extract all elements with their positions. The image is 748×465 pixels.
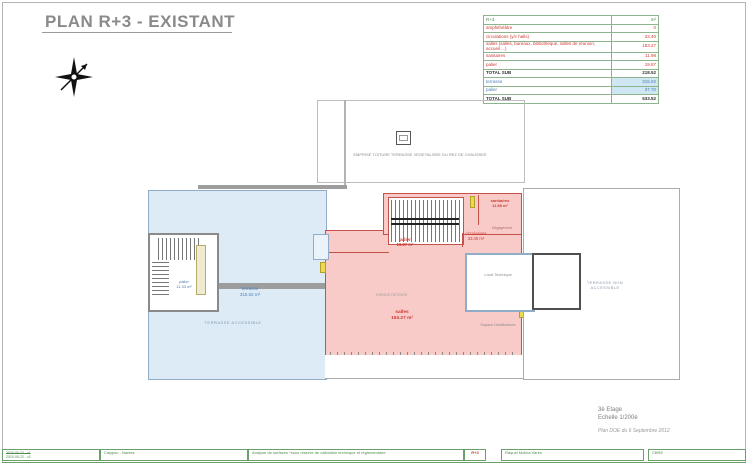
roof-caption: EMPRISE TOITURE TERRASSE VEGETALISEE DU …	[317, 152, 523, 157]
table-row: palier 37.70	[484, 86, 659, 95]
title-underline	[42, 32, 232, 33]
room-area: 11.33 m²	[176, 284, 192, 289]
row-value: 11.98	[612, 52, 659, 61]
footer-version-cell: 2020-05-22 - v1 2020-05-22 - v2	[2, 449, 100, 461]
stair-rail	[391, 223, 459, 225]
table-row: circulations (y/c halls) 33.40	[484, 33, 659, 42]
row-value: 533.52	[612, 95, 659, 104]
table-row: salles (salles, bureaux, bibliothèque, s…	[484, 41, 659, 52]
row-value: 0	[612, 24, 659, 33]
table-row: sanitaires 11.98	[484, 52, 659, 61]
row-label: palier	[484, 61, 612, 70]
espace-detente-label: ESPACE DETENTE	[370, 293, 414, 297]
terrasse-non-accessible-label: TERRASSE NON ACCESSIBLE	[575, 280, 635, 290]
surface-area-table: R+3 m² amphithéâtre 0 circulations (y/c …	[483, 15, 659, 104]
roof-outline	[317, 100, 525, 183]
room-area: 11.98 m²	[492, 203, 508, 208]
floor-label: 3è Etage	[598, 407, 670, 415]
roof-hatch-icon	[396, 131, 411, 145]
room-name: circulations	[466, 231, 487, 236]
row-label: TOTAL SUB	[484, 69, 612, 78]
interior-wall	[478, 195, 479, 225]
table-row: palier 19.87	[484, 61, 659, 70]
footer-level-cell: R+3	[464, 449, 486, 461]
row-label: salles (salles, bureaux, bibliothèque, s…	[484, 41, 612, 52]
row-value: 315.02	[612, 78, 659, 87]
door-marker	[320, 262, 326, 273]
room-name: terrasse	[242, 286, 258, 291]
local-technique-room	[465, 253, 535, 312]
room-name: salles	[395, 310, 408, 315]
door-marker	[470, 196, 475, 208]
degagement-label: Dégagement	[485, 226, 519, 230]
roof-edge-wall	[344, 100, 346, 187]
footer-project-cell: Calypso - Nantes	[100, 449, 248, 461]
plan-sheet: PLAN R+3 - EXISTANT R+3 m² amphithéâtre …	[0, 0, 748, 465]
sanitaires-label: sanitaires 11.98 m²	[480, 198, 520, 208]
room-area: 153.27 m²	[391, 316, 413, 321]
row-label: terrasse	[484, 78, 612, 87]
circulations-label: circulations 33.40 m²	[447, 231, 505, 242]
room-name: palier	[399, 237, 410, 242]
footer-bottom-rule	[2, 462, 746, 463]
drawing-titleblock: 3è Etage Echelle 1/200è Plan DOE du 6 Se…	[598, 407, 670, 434]
page-title: PLAN R+3 - EXISTANT	[45, 12, 235, 32]
espace-distributeurs-label: Espace Distributeurs	[477, 323, 519, 328]
terrasse-area-label: terrasse 315.02 m²	[212, 286, 288, 297]
terrace-access-box	[313, 234, 329, 260]
interior-wall	[325, 252, 389, 253]
table-row: terrasse 315.02	[484, 78, 659, 87]
row-label: amphithéâtre	[484, 24, 612, 33]
palier-label: palier 19.87 m²	[385, 237, 425, 248]
terrace-2e-wall	[198, 185, 347, 189]
room-area: 33.40 m²	[468, 236, 485, 241]
room-area: 315.02 m²	[240, 292, 260, 297]
stair-block: palier 11.33 m²	[148, 233, 219, 312]
row-value: 37.70	[612, 86, 659, 95]
row-value: 19.87	[612, 61, 659, 70]
compass-rose-icon	[54, 56, 94, 98]
footer-author-cell: Raquel Molina Varés	[501, 449, 644, 461]
scale-label: Echelle 1/200è	[598, 415, 670, 423]
row-value: 33.40	[612, 33, 659, 42]
plan-bottom-strip	[325, 355, 523, 379]
row-label: sanitaires	[484, 52, 612, 61]
stair-rail	[391, 218, 459, 220]
salles-label: salles 153.27 m²	[372, 310, 432, 322]
table-row-total-sub: TOTAL SUB 218.52	[484, 69, 659, 78]
technical-enclosure	[532, 253, 581, 310]
row-value: 218.52	[612, 69, 659, 78]
footer-company-cell: CBRE	[648, 449, 746, 461]
row-value: 153.27	[612, 41, 659, 52]
table-header-unit: m²	[612, 16, 659, 25]
table-row: amphithéâtre 0	[484, 24, 659, 33]
table-header-level: R+3	[484, 16, 612, 25]
version-current: 2020-05-22 - v2	[6, 455, 96, 459]
local-technique-label: Local Technique	[476, 273, 520, 278]
row-label: circulations (y/c halls)	[484, 33, 612, 42]
terrasse-accessible-label: TERRASSE ACCESSIBLE	[188, 320, 278, 325]
stairs-palier-label: palier 11.33 m²	[164, 279, 204, 289]
source-doc-label: Plan DOE du 6 Septembre 2012	[598, 428, 670, 435]
row-label: palier	[484, 86, 612, 95]
footer-note-cell: Analyse de surfaces *sous réserve de val…	[248, 449, 464, 461]
room-area: 19.87 m²	[397, 242, 414, 247]
table-header-row: R+3 m²	[484, 16, 659, 25]
